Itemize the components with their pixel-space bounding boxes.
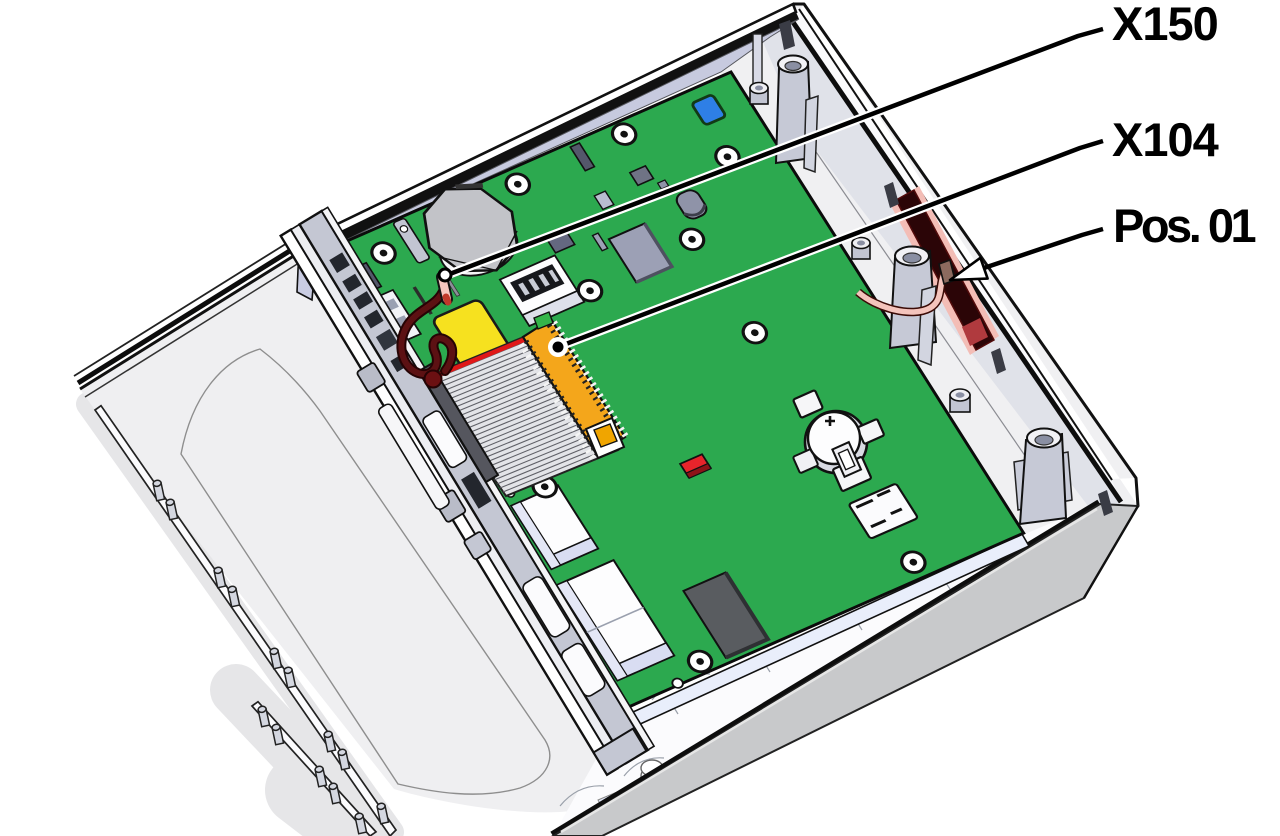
svg-text:X150: X150: [1112, 0, 1218, 50]
svg-text:X104: X104: [1112, 113, 1219, 166]
svg-text:Pos. 01: Pos. 01: [1113, 199, 1255, 252]
